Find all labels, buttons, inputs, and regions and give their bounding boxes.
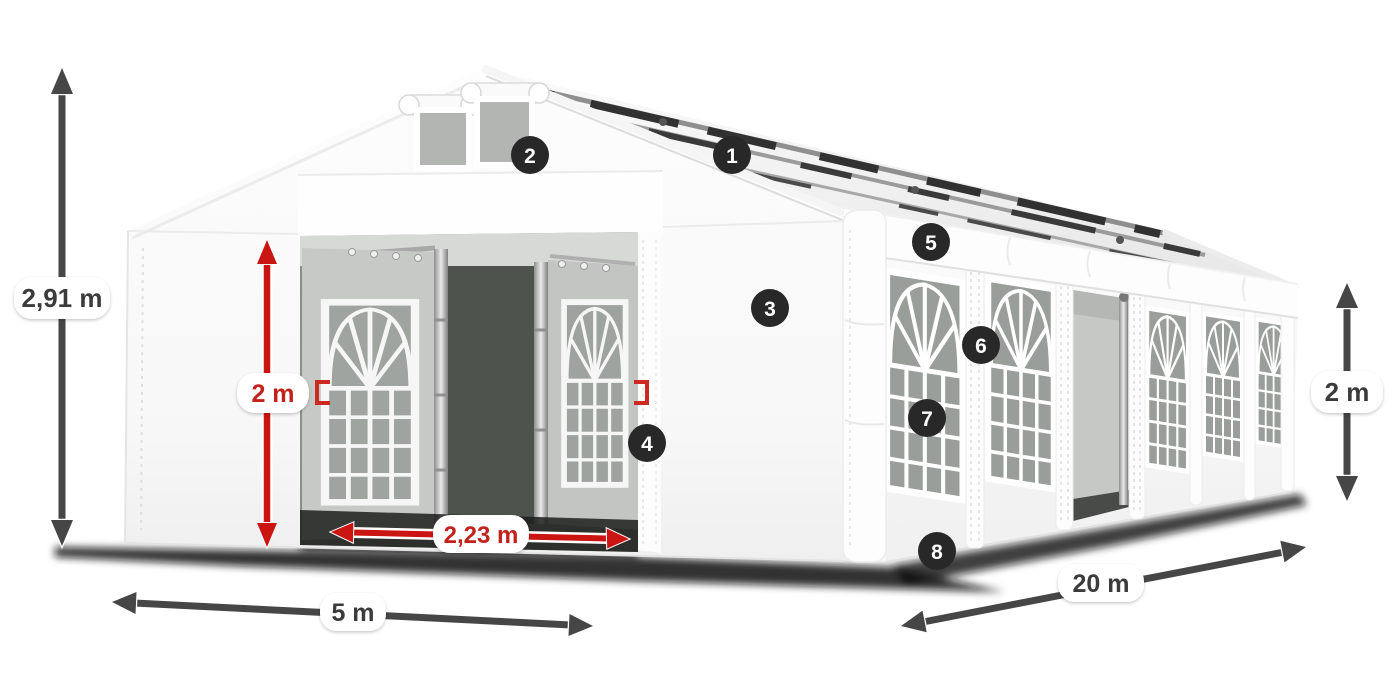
interior-dark <box>448 266 536 524</box>
tarp-hook <box>393 253 400 260</box>
side-window-1 <box>884 268 966 503</box>
callout-number-6: 6 <box>975 335 987 358</box>
callout-badge-3[interactable]: 3 <box>751 289 789 327</box>
tent-illustration: 2,91 m 2 m 2,23 m <box>0 0 1400 700</box>
frame-connector <box>1116 236 1124 244</box>
arrowhead-up <box>51 68 73 94</box>
door-panel-left <box>302 248 436 540</box>
frame-connector <box>659 118 667 126</box>
dimension-label-total-height: 2,91 m <box>22 283 103 313</box>
door-jamb-right <box>638 231 661 553</box>
dimension-side-height: 2 m <box>1311 283 1383 501</box>
dimension-pill-side-height: 2 m <box>1311 371 1383 413</box>
callout-badge-1[interactable]: 1 <box>713 136 751 174</box>
vent-opening <box>417 110 469 168</box>
corner-post <box>843 210 886 562</box>
tarp-hook <box>603 265 610 272</box>
dimension-pill-entrance-width: 2,23 m <box>433 515 529 553</box>
arrowhead-right <box>1280 541 1306 563</box>
frame-pole <box>1119 300 1128 505</box>
callout-number-8: 8 <box>931 541 943 564</box>
callout-badge-8[interactable]: 8 <box>918 532 956 570</box>
callout-badge-7[interactable]: 7 <box>908 399 946 437</box>
dimension-label-length: 20 m <box>1073 570 1130 598</box>
side-window-3 <box>1146 306 1189 473</box>
arrowhead-up <box>1336 283 1358 308</box>
callout-number-5: 5 <box>925 232 937 255</box>
entrance-opening <box>300 232 638 552</box>
tarp-hook <box>371 251 378 258</box>
dimension-span-width: 5 m <box>112 592 593 636</box>
callout-number-3: 3 <box>764 298 776 321</box>
dimension-label-span-width: 5 m <box>331 599 374 627</box>
entrance-lintel <box>298 171 663 239</box>
open-side-section <box>1073 290 1129 521</box>
product-diagram: 2,91 m 2 m 2,23 m <box>0 0 1400 700</box>
dimension-label-entrance-height: 2 m <box>251 380 294 408</box>
frame-connector <box>911 186 919 194</box>
callout-number-4: 4 <box>641 433 653 456</box>
callout-number-2: 2 <box>524 145 536 168</box>
side-window-2 <box>986 276 1056 492</box>
arrowhead-right <box>569 614 594 636</box>
dimension-pill-span-width: 5 m <box>320 593 386 631</box>
side-window-4 <box>1203 312 1243 461</box>
callout-number-1: 1 <box>726 145 738 168</box>
arrowhead-left <box>112 592 137 614</box>
arrowhead-down <box>51 520 73 546</box>
callout-badge-4[interactable]: 4 <box>628 424 666 462</box>
tarp-hook <box>559 261 566 268</box>
tarp-hook <box>415 255 422 262</box>
callout-badge-6[interactable]: 6 <box>962 326 1000 364</box>
dimension-label-side-height: 2 m <box>1325 377 1370 407</box>
dimension-pill-entrance-height: 2 m <box>237 373 309 413</box>
dimension-pill-length: 20 m <box>1058 564 1144 602</box>
tarp-hook <box>581 263 588 270</box>
tarp-hook <box>349 249 356 256</box>
callout-badge-5[interactable]: 5 <box>912 223 950 261</box>
door-window-print <box>562 300 628 487</box>
door-panel-right <box>548 260 638 530</box>
dimension-total-height: 2,91 m <box>14 68 110 546</box>
dimension-pill-total-height: 2,91 m <box>14 277 110 319</box>
callout-number-7: 7 <box>921 408 933 431</box>
door-window-print <box>322 300 418 505</box>
dimension-label-entrance-width: 2,23 m <box>444 522 519 549</box>
arrowhead-left <box>901 611 927 633</box>
callout-badge-2[interactable]: 2 <box>511 136 549 174</box>
door-frame-pole <box>534 262 548 524</box>
arrowhead-down <box>1336 476 1358 501</box>
